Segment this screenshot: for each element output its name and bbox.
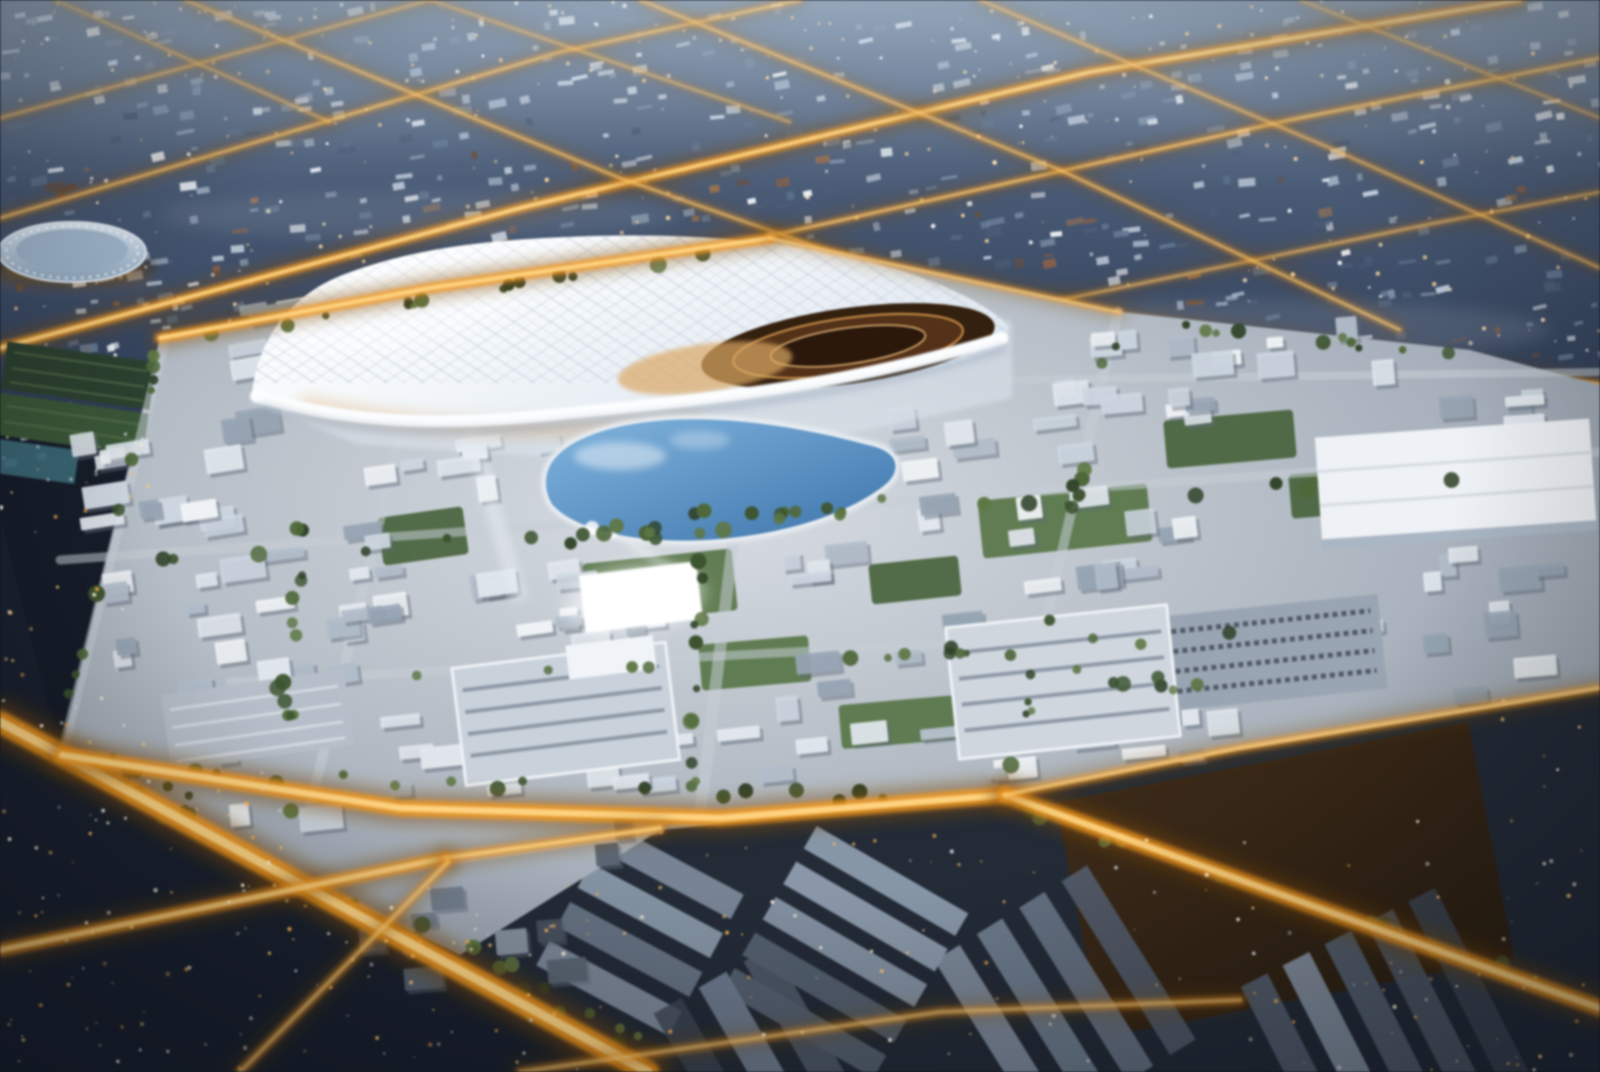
- stadium-district-aerial-rendering: Aerial rendering of a stadium entertainm…: [0, 0, 1600, 1072]
- vignette-overlay: [0, 0, 1600, 1072]
- scene-canvas: [0, 0, 1600, 1072]
